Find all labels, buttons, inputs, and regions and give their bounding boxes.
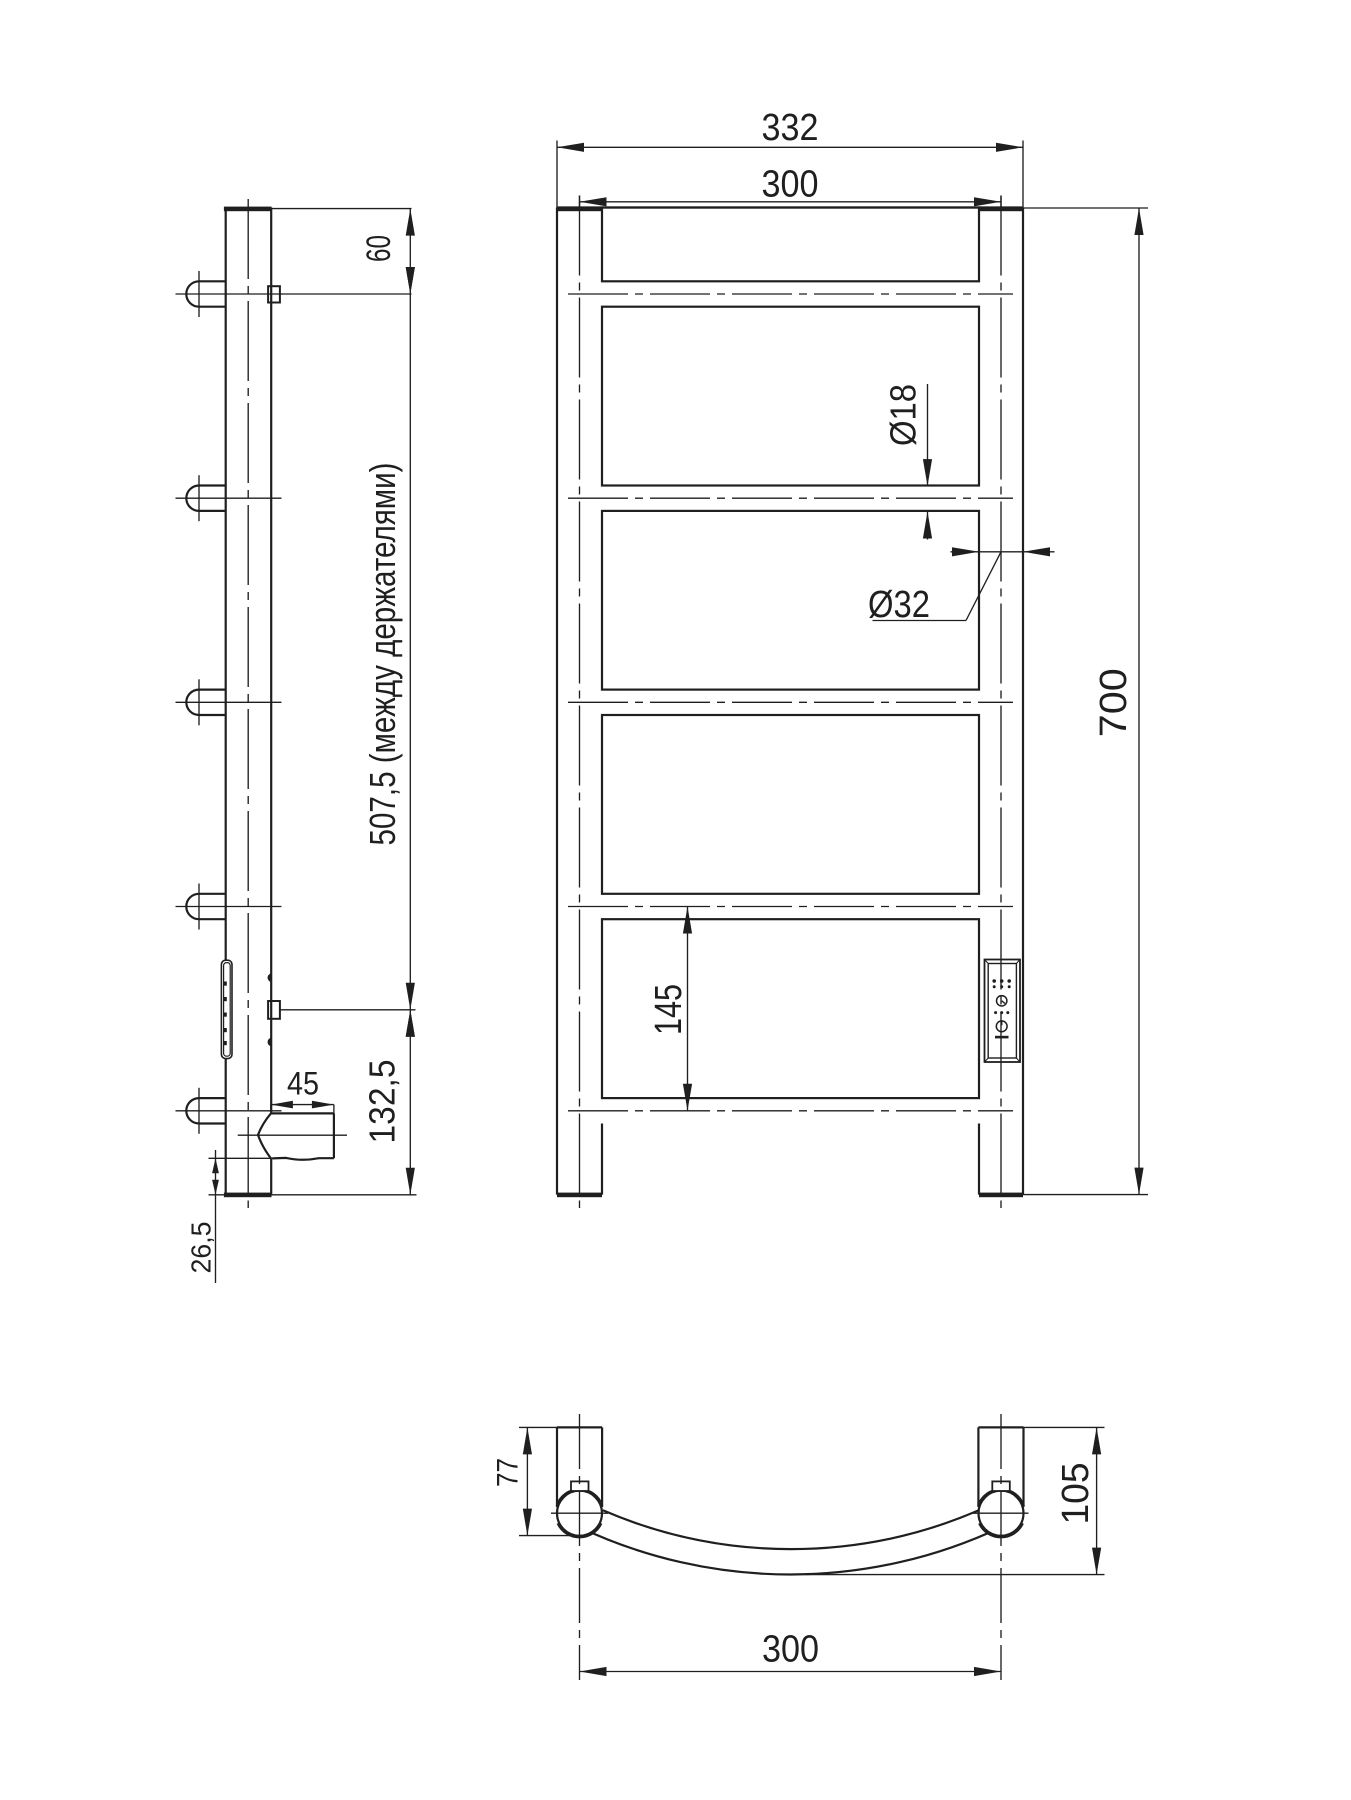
svg-text:132,5: 132,5 <box>362 1060 403 1144</box>
svg-text:105: 105 <box>1055 1463 1097 1525</box>
svg-text:77: 77 <box>492 1458 525 1487</box>
svg-text:700: 700 <box>1093 668 1135 737</box>
svg-text:Ø18: Ø18 <box>883 384 924 446</box>
svg-text:300: 300 <box>762 164 819 206</box>
svg-text:60: 60 <box>360 235 398 262</box>
svg-text:300: 300 <box>762 1629 819 1671</box>
svg-text:507,5 (между держателями): 507,5 (между держателями) <box>362 463 403 846</box>
svg-text:45: 45 <box>287 1066 319 1102</box>
svg-text:26,5: 26,5 <box>186 1222 217 1274</box>
svg-text:Ø32: Ø32 <box>868 584 930 626</box>
svg-text:332: 332 <box>762 107 819 149</box>
svg-text:145: 145 <box>648 984 690 1035</box>
